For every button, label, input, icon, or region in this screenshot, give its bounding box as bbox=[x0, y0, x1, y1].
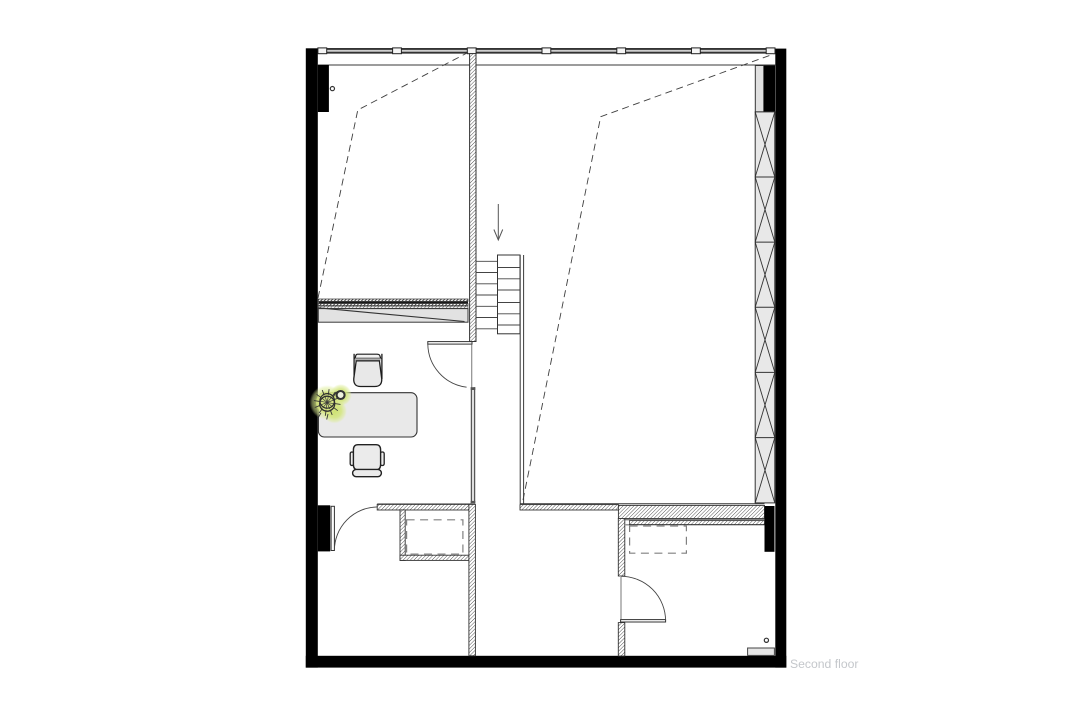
svg-text:Second floor: Second floor bbox=[790, 657, 858, 671]
